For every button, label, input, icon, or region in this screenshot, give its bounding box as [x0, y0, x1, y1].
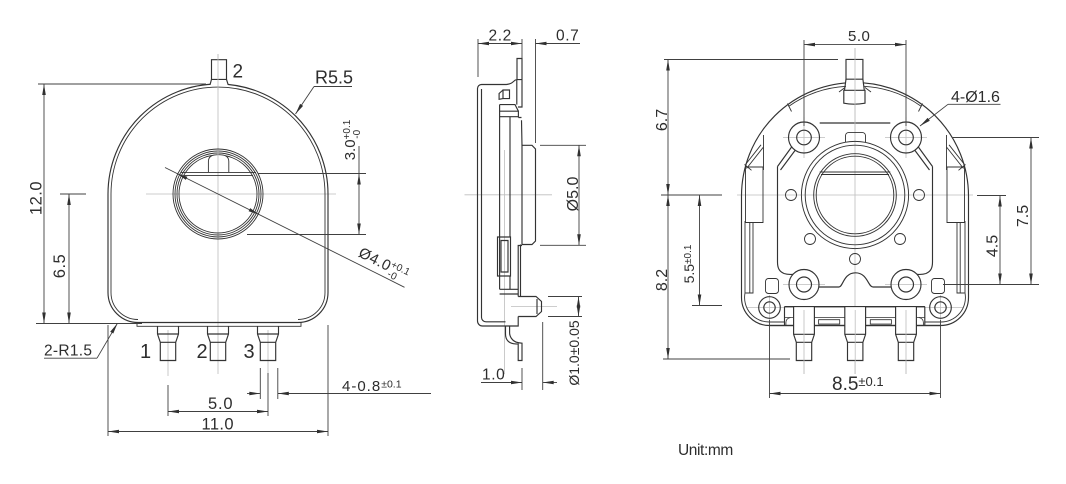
svg-text:1.0: 1.0	[482, 367, 505, 384]
svg-text:12.0: 12.0	[28, 181, 46, 215]
svg-text:Ø5.0: Ø5.0	[565, 177, 582, 212]
svg-text:2.2: 2.2	[489, 28, 512, 45]
svg-text:11.0: 11.0	[202, 416, 235, 434]
svg-text:Unit:mm: Unit:mm	[678, 442, 733, 459]
svg-text:5.0: 5.0	[848, 28, 870, 45]
svg-text:4.5: 4.5	[985, 235, 1002, 257]
svg-text:3: 3	[244, 341, 255, 363]
svg-text:R5.5: R5.5	[315, 68, 353, 88]
svg-text:5.0: 5.0	[208, 395, 233, 413]
svg-text:8.2: 8.2	[654, 269, 671, 291]
svg-text:6.5: 6.5	[51, 254, 69, 278]
svg-text:2-R1.5: 2-R1.5	[44, 343, 92, 360]
svg-text:7.5: 7.5	[1015, 205, 1032, 227]
svg-text:2: 2	[233, 62, 244, 83]
svg-text:0.7: 0.7	[556, 28, 579, 45]
svg-text:1: 1	[140, 341, 151, 363]
svg-text:Ø1.0±0.05: Ø1.0±0.05	[566, 320, 582, 385]
svg-text:4-Ø1.6: 4-Ø1.6	[951, 89, 1000, 106]
svg-text:2: 2	[197, 341, 208, 363]
svg-text:6.7: 6.7	[654, 109, 671, 131]
